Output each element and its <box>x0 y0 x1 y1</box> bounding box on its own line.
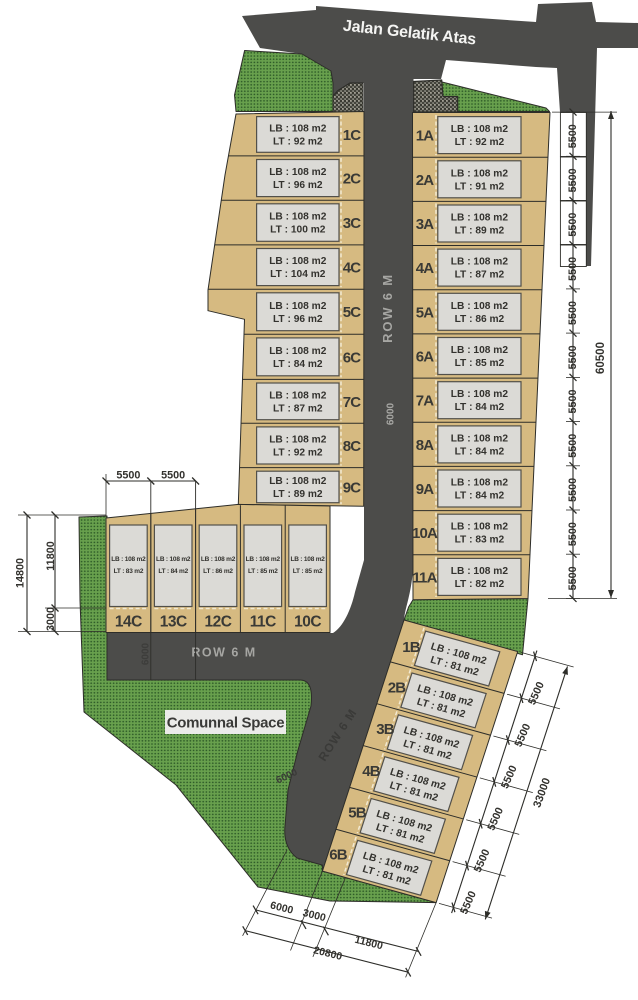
svg-text:LT : 100 m2: LT : 100 m2 <box>270 225 326 236</box>
svg-text:10C: 10C <box>294 614 321 631</box>
svg-text:LT : 92 m2: LT : 92 m2 <box>455 137 505 148</box>
svg-text:LB : 108 m2: LB : 108 m2 <box>451 212 509 223</box>
svg-text:Comunnal Space: Comunnal Space <box>167 715 285 732</box>
svg-text:4B: 4B <box>362 763 381 780</box>
svg-text:LB : 108 m2: LB : 108 m2 <box>201 556 236 563</box>
svg-text:LB : 108 m2: LB : 108 m2 <box>111 556 146 563</box>
svg-text:1C: 1C <box>343 127 362 144</box>
svg-text:LT : 91 m2: LT : 91 m2 <box>455 181 505 192</box>
svg-text:3A: 3A <box>416 216 435 233</box>
svg-text:ROW 6 M: ROW 6 M <box>380 273 395 343</box>
svg-text:1B: 1B <box>402 639 421 656</box>
svg-text:11800: 11800 <box>45 541 57 570</box>
svg-text:6A: 6A <box>416 349 435 366</box>
svg-text:LT : 85 m2: LT : 85 m2 <box>293 568 323 575</box>
svg-text:LB : 108 m2: LB : 108 m2 <box>269 212 327 223</box>
svg-text:LB : 108 m2: LB : 108 m2 <box>269 301 327 312</box>
svg-text:LB : 108 m2: LB : 108 m2 <box>269 476 327 487</box>
svg-text:5C: 5C <box>343 304 362 321</box>
svg-text:8C: 8C <box>343 438 362 455</box>
svg-text:9A: 9A <box>416 481 435 498</box>
svg-text:4C: 4C <box>343 260 362 277</box>
svg-text:LT : 82 m2: LT : 82 m2 <box>455 579 505 590</box>
svg-text:3B: 3B <box>376 721 395 738</box>
svg-text:5500: 5500 <box>567 301 579 325</box>
svg-text:LB : 108 m2: LB : 108 m2 <box>451 389 509 400</box>
svg-text:5500: 5500 <box>567 257 579 281</box>
svg-text:LT : 84 m2: LT : 84 m2 <box>158 568 188 575</box>
svg-text:4A: 4A <box>416 260 435 277</box>
svg-text:LT : 96 m2: LT : 96 m2 <box>273 180 323 191</box>
svg-text:LT : 84 m2: LT : 84 m2 <box>273 359 323 370</box>
svg-text:LT : 86 m2: LT : 86 m2 <box>455 314 505 325</box>
svg-text:12C: 12C <box>205 614 232 631</box>
svg-text:10A: 10A <box>412 525 438 542</box>
svg-text:5500: 5500 <box>567 168 579 192</box>
svg-text:3000: 3000 <box>45 607 57 631</box>
svg-text:3C: 3C <box>343 215 362 232</box>
svg-text:LT : 96 m2: LT : 96 m2 <box>273 314 323 325</box>
svg-text:LT : 85 m2: LT : 85 m2 <box>248 568 278 575</box>
svg-text:LB : 108 m2: LB : 108 m2 <box>269 346 327 357</box>
svg-text:14800: 14800 <box>14 558 26 588</box>
svg-text:LT : 104 m2: LT : 104 m2 <box>270 269 326 280</box>
svg-text:6C: 6C <box>343 349 362 366</box>
svg-text:LT : 87 m2: LT : 87 m2 <box>455 270 505 281</box>
svg-text:8A: 8A <box>416 437 435 454</box>
svg-text:LT : 84 m2: LT : 84 m2 <box>455 402 505 413</box>
svg-text:9C: 9C <box>343 480 362 497</box>
svg-text:LT : 87 m2: LT : 87 m2 <box>273 403 323 414</box>
svg-text:LB : 108 m2: LB : 108 m2 <box>451 168 509 179</box>
svg-text:LB : 108 m2: LB : 108 m2 <box>451 433 509 444</box>
svg-text:5500: 5500 <box>567 522 579 546</box>
svg-text:LB : 108 m2: LB : 108 m2 <box>290 556 325 563</box>
svg-text:13C: 13C <box>160 614 187 631</box>
svg-text:LB : 108 m2: LB : 108 m2 <box>451 124 509 135</box>
svg-text:LB : 108 m2: LB : 108 m2 <box>269 167 327 178</box>
svg-text:11A: 11A <box>412 569 437 586</box>
svg-text:LT : 92 m2: LT : 92 m2 <box>273 136 323 147</box>
svg-text:LB : 108 m2: LB : 108 m2 <box>451 345 509 356</box>
svg-text:11C: 11C <box>250 614 276 631</box>
svg-text:LB : 108 m2: LB : 108 m2 <box>451 257 509 268</box>
svg-text:LB : 108 m2: LB : 108 m2 <box>156 556 191 563</box>
svg-text:LT : 86 m2: LT : 86 m2 <box>203 568 233 575</box>
svg-text:14C: 14C <box>115 614 142 631</box>
svg-text:2B: 2B <box>388 680 407 697</box>
svg-text:1A: 1A <box>416 128 435 145</box>
svg-text:LB : 108 m2: LB : 108 m2 <box>451 478 509 489</box>
svg-text:LT : 84 m2: LT : 84 m2 <box>455 446 505 457</box>
svg-text:LT : 85 m2: LT : 85 m2 <box>455 358 505 369</box>
svg-text:5500: 5500 <box>567 478 579 502</box>
svg-text:LT : 84 m2: LT : 84 m2 <box>455 491 505 502</box>
svg-text:2A: 2A <box>416 172 435 189</box>
svg-text:LT : 92 m2: LT : 92 m2 <box>273 448 323 459</box>
svg-text:ROW 6 M: ROW 6 M <box>191 646 256 660</box>
svg-text:LB : 108 m2: LB : 108 m2 <box>269 435 327 446</box>
svg-text:6000: 6000 <box>141 642 152 665</box>
svg-text:5500: 5500 <box>567 213 579 237</box>
svg-text:LT : 83 m2: LT : 83 m2 <box>455 535 505 546</box>
svg-text:5500: 5500 <box>567 345 579 369</box>
svg-text:5500: 5500 <box>116 470 140 482</box>
svg-text:60500: 60500 <box>595 342 607 374</box>
svg-text:LT : 89 m2: LT : 89 m2 <box>455 225 505 236</box>
svg-text:5500: 5500 <box>161 470 185 482</box>
svg-text:LB : 108 m2: LB : 108 m2 <box>451 301 509 312</box>
svg-text:5500: 5500 <box>567 434 579 458</box>
svg-text:7C: 7C <box>343 394 362 411</box>
svg-text:6B: 6B <box>329 847 348 864</box>
svg-text:2C: 2C <box>343 171 362 188</box>
svg-text:5500: 5500 <box>567 124 579 148</box>
svg-text:LT : 89 m2: LT : 89 m2 <box>273 489 323 500</box>
svg-text:5500: 5500 <box>567 389 579 413</box>
svg-text:5B: 5B <box>348 805 367 822</box>
svg-text:LB : 108 m2: LB : 108 m2 <box>269 123 327 134</box>
svg-text:6000: 6000 <box>386 402 397 425</box>
svg-text:LB : 108 m2: LB : 108 m2 <box>451 522 509 533</box>
svg-text:LB : 108 m2: LB : 108 m2 <box>269 390 327 401</box>
svg-text:5500: 5500 <box>567 566 579 590</box>
svg-text:7A: 7A <box>416 393 435 410</box>
svg-text:LB : 108 m2: LB : 108 m2 <box>246 556 281 563</box>
svg-text:LT : 83 m2: LT : 83 m2 <box>114 568 144 575</box>
svg-text:5A: 5A <box>416 304 435 321</box>
svg-text:LB : 108 m2: LB : 108 m2 <box>451 566 509 577</box>
svg-text:LB : 108 m2: LB : 108 m2 <box>269 256 327 267</box>
